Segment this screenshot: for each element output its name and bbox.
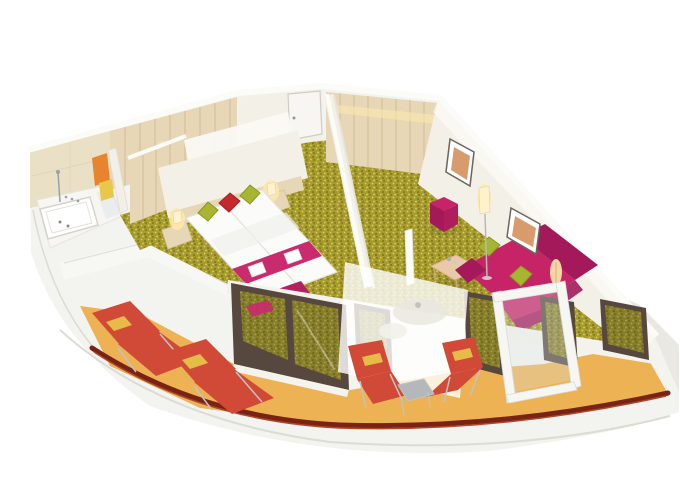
living-window-5 xyxy=(600,299,649,360)
table-decor-2 xyxy=(453,260,456,263)
suite-floorplan-render xyxy=(0,0,680,486)
bedside-lamp-left xyxy=(173,210,182,224)
floor-lamp-shade xyxy=(479,186,490,214)
bathtub-drain-1 xyxy=(59,221,62,224)
open-glass-door xyxy=(492,281,581,403)
bathtub-drain-2 xyxy=(67,225,70,228)
table-decor-1 xyxy=(447,257,451,261)
shower-head xyxy=(56,170,60,174)
bedside-lamp-right xyxy=(267,182,276,196)
floorplan-canvas xyxy=(0,0,680,486)
white-chair-silhouette xyxy=(379,323,407,339)
floor-lamp-base xyxy=(482,276,492,280)
round-table-item xyxy=(415,302,421,308)
entry-door-handle xyxy=(293,117,296,120)
